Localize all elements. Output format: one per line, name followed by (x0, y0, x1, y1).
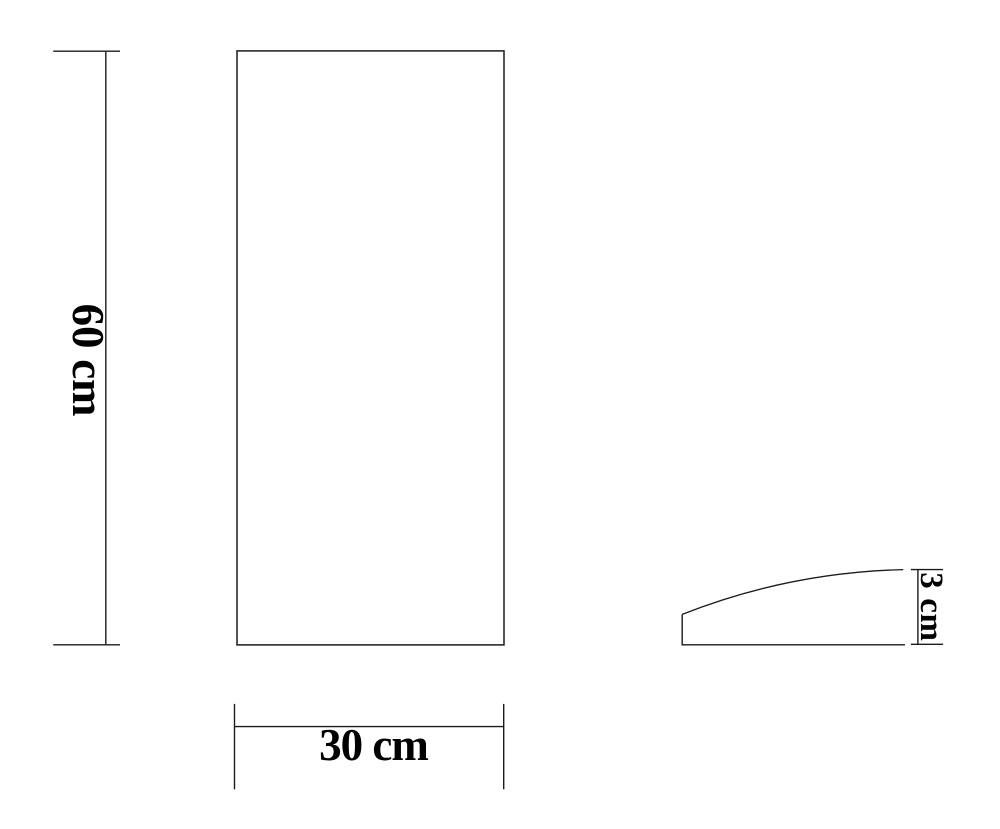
svg-text:30 cm: 30 cm (319, 720, 428, 770)
svg-text:60 cm: 60 cm (63, 304, 113, 417)
svg-text:3 cm: 3 cm (913, 572, 949, 641)
